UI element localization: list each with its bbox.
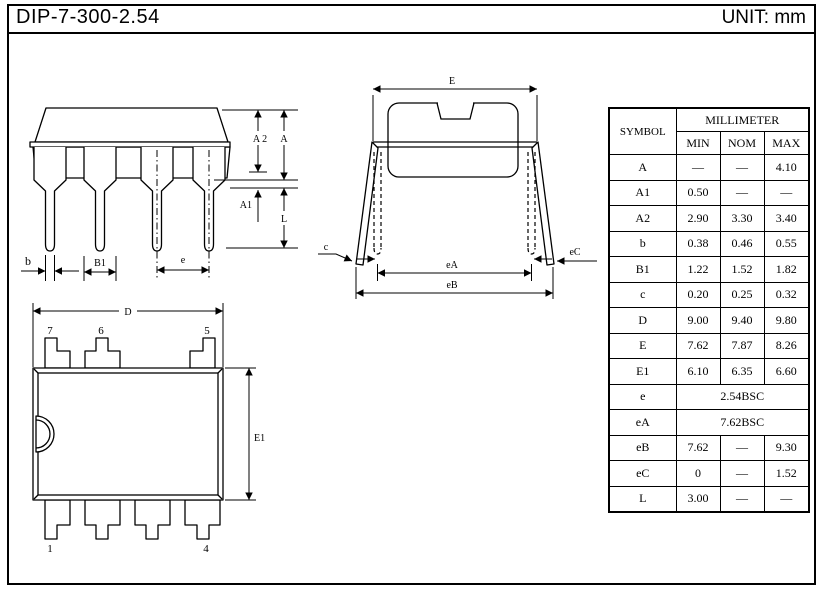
span-value-cell: 7.62BSC [676, 410, 809, 436]
table-row: B11.221.521.82 [609, 257, 809, 283]
side-view: E eA eB c eC [318, 76, 597, 299]
millimeter-header: MILLIMETER [676, 108, 809, 132]
nom-cell: 0.46 [720, 231, 764, 257]
datasheet-page: DIP-7-300-2.54 UNIT: mm [0, 0, 822, 591]
min-cell: 6.10 [676, 359, 720, 385]
nom-cell: 6.35 [720, 359, 764, 385]
table-row: eA7.62BSC [609, 410, 809, 436]
symbol-cell: e [609, 384, 676, 410]
front-view: A 2 A A1 L b B1 e [21, 108, 298, 281]
symbol-cell: L [609, 486, 676, 512]
table-row: E16.106.356.60 [609, 359, 809, 385]
table-row: c0.200.250.32 [609, 282, 809, 308]
min-header: MIN [676, 132, 720, 155]
max-cell: 3.40 [764, 206, 809, 232]
dimension-table: SYMBOL MILLIMETER MIN NOM MAX A——4.10A10… [608, 107, 810, 513]
top-body-outer [33, 368, 223, 500]
symbol-cell: A2 [609, 206, 676, 232]
symbol-cell: eA [609, 410, 676, 436]
bottom-pin-1 [45, 500, 70, 539]
nom-cell: 9.40 [720, 308, 764, 334]
front-pin-1 [34, 147, 66, 251]
max-cell: 6.60 [764, 359, 809, 385]
min-cell: 0.20 [676, 282, 720, 308]
front-body-parting-line [30, 142, 230, 147]
pin-number-6: 6 [98, 325, 104, 337]
bottom-pin-3 [135, 500, 170, 539]
min-cell: — [676, 155, 720, 181]
min-cell: 7.62 [676, 333, 720, 359]
top-pin-7 [45, 338, 70, 368]
nom-cell: 1.52 [720, 257, 764, 283]
min-cell: 7.62 [676, 435, 720, 461]
top-pin-5 [190, 338, 215, 368]
min-cell: 0.50 [676, 180, 720, 206]
max-cell: 0.32 [764, 282, 809, 308]
dim-label-a: A [280, 134, 288, 145]
max-cell: — [764, 486, 809, 512]
nom-cell: — [720, 486, 764, 512]
top-pin-6 [85, 338, 120, 368]
symbol-cell: c [609, 282, 676, 308]
dim-label-b1: B1 [94, 258, 106, 269]
side-lead-left [356, 142, 378, 265]
nom-cell: — [720, 435, 764, 461]
table-row: e2.54BSC [609, 384, 809, 410]
dim-label-D: D [124, 307, 131, 318]
table-row: D9.009.409.80 [609, 308, 809, 334]
dim-label-c: c [324, 242, 329, 253]
max-cell: 9.30 [764, 435, 809, 461]
max-cell: 0.55 [764, 231, 809, 257]
symbol-header: SYMBOL [609, 108, 676, 155]
min-cell: 1.22 [676, 257, 720, 283]
dim-label-eC: eC [569, 247, 580, 258]
pin-number-5: 5 [204, 325, 210, 337]
symbol-cell: D [609, 308, 676, 334]
dim-label-eA: eA [446, 260, 458, 271]
dim-label-b: b [25, 254, 31, 268]
max-cell: 1.82 [764, 257, 809, 283]
table-row: A——4.10 [609, 155, 809, 181]
table-row: eC0—1.52 [609, 461, 809, 487]
nom-cell: — [720, 155, 764, 181]
symbol-cell: A [609, 155, 676, 181]
top-view: D 7 6 5 1 4 E1 [33, 303, 265, 555]
max-cell: 8.26 [764, 333, 809, 359]
max-cell: — [764, 180, 809, 206]
side-body [388, 103, 518, 177]
table-row: A10.50—— [609, 180, 809, 206]
nom-cell: — [720, 461, 764, 487]
dim-label-a2: A 2 [253, 134, 267, 145]
dim-label-l: L [281, 214, 287, 225]
nom-cell: — [720, 180, 764, 206]
table-row: A22.903.303.40 [609, 206, 809, 232]
min-cell: 9.00 [676, 308, 720, 334]
symbol-cell: A1 [609, 180, 676, 206]
symbol-cell: b [609, 231, 676, 257]
dimension-table-body: A——4.10A10.50——A22.903.303.40b0.380.460.… [609, 155, 809, 513]
symbol-cell: eC [609, 461, 676, 487]
symbol-cell: B1 [609, 257, 676, 283]
dim-label-e-pitch: e [181, 255, 186, 266]
bottom-pin-2 [85, 500, 120, 539]
min-cell: 3.00 [676, 486, 720, 512]
dim-label-E: E [449, 76, 455, 87]
table-row: eB7.62—9.30 [609, 435, 809, 461]
symbol-cell: E [609, 333, 676, 359]
min-cell: 0 [676, 461, 720, 487]
max-cell: 1.52 [764, 461, 809, 487]
bottom-pin-4 [185, 500, 220, 539]
span-value-cell: 2.54BSC [676, 384, 809, 410]
min-cell: 2.90 [676, 206, 720, 232]
front-pin-2 [84, 147, 116, 251]
min-cell: 0.38 [676, 231, 720, 257]
symbol-cell: eB [609, 435, 676, 461]
table-row: L3.00—— [609, 486, 809, 512]
dim-label-a1: A1 [240, 200, 252, 211]
symbol-cell: E1 [609, 359, 676, 385]
dim-label-eB: eB [446, 280, 457, 291]
table-row: E7.627.878.26 [609, 333, 809, 359]
pin-number-7: 7 [47, 325, 53, 337]
nom-header: NOM [720, 132, 764, 155]
max-cell: 9.80 [764, 308, 809, 334]
top-dimensions: E1 [225, 368, 265, 500]
nom-cell: 0.25 [720, 282, 764, 308]
nom-cell: 7.87 [720, 333, 764, 359]
table-row: b0.380.460.55 [609, 231, 809, 257]
dim-label-E1: E1 [254, 433, 265, 444]
front-body-top [35, 108, 228, 142]
max-header: MAX [764, 132, 809, 155]
nom-cell: 3.30 [720, 206, 764, 232]
pin-number-4: 4 [203, 543, 209, 555]
pin-number-1: 1 [47, 543, 53, 555]
max-cell: 4.10 [764, 155, 809, 181]
